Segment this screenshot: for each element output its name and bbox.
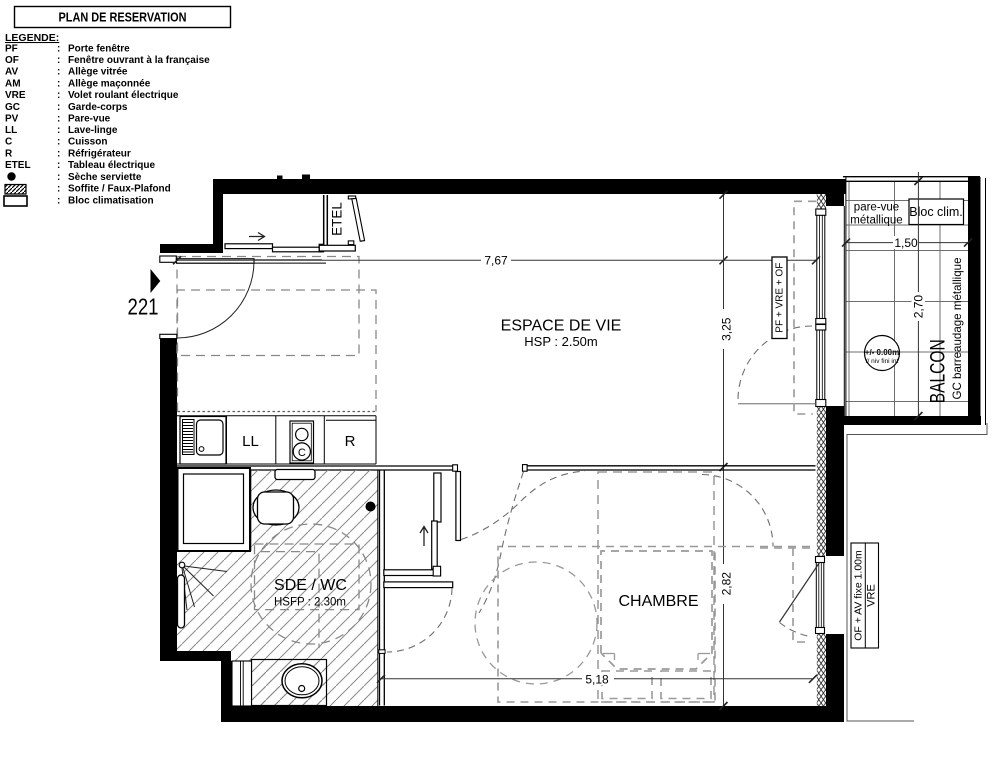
svg-text:Tableau électrique: Tableau électrique [68, 160, 156, 171]
svg-text:LL: LL [5, 125, 17, 136]
svg-text:PF: PF [5, 44, 18, 55]
svg-text:Bloc climatisation: Bloc climatisation [68, 196, 154, 207]
svg-text:1,50: 1,50 [894, 236, 918, 250]
svg-text::: : [57, 67, 60, 78]
svg-text:HSP : 2.50m: HSP : 2.50m [524, 334, 597, 349]
svg-text:C: C [5, 137, 12, 148]
svg-text:SDE / WC: SDE / WC [274, 577, 347, 594]
svg-text:ETEL: ETEL [330, 202, 345, 236]
svg-text:AM: AM [5, 79, 21, 90]
svg-text::: : [57, 172, 60, 183]
svg-text:VRE: VRE [5, 90, 26, 101]
svg-text:PF + VRE + OF: PF + VRE + OF [774, 263, 785, 333]
svg-text:HSFP : 2.30m: HSFP : 2.30m [274, 597, 346, 609]
svg-text:Réfrigérateur: Réfrigérateur [68, 149, 131, 160]
svg-text:GC barreaudage métallique: GC barreaudage métallique [950, 257, 964, 399]
svg-text:Garde-corps: Garde-corps [68, 102, 128, 113]
svg-text::: : [57, 125, 60, 136]
svg-text:R: R [345, 433, 356, 450]
svg-text::: : [57, 184, 60, 195]
svg-text:Sèche serviette: Sèche serviette [68, 172, 142, 183]
svg-text:AV: AV [5, 67, 18, 78]
svg-text:+/- 0.00m: +/- 0.00m [865, 348, 899, 357]
svg-text:pare-vue: pare-vue [854, 202, 899, 214]
svg-text:3,25: 3,25 [719, 317, 733, 341]
svg-text::: : [57, 114, 60, 125]
svg-text::: : [57, 44, 60, 55]
svg-text:Soffite / Faux-Plafond: Soffite / Faux-Plafond [68, 184, 171, 195]
svg-text:C: C [298, 447, 306, 459]
svg-text:// niv fini int: // niv fini int [866, 358, 899, 365]
svg-text:5,18: 5,18 [585, 673, 609, 687]
svg-text:métallique: métallique [850, 215, 902, 227]
svg-text:GC: GC [5, 102, 20, 113]
svg-text:ETEL: ETEL [5, 160, 31, 171]
svg-text::: : [57, 137, 60, 148]
svg-text::: : [57, 160, 60, 171]
svg-text:2,82: 2,82 [719, 572, 733, 596]
svg-text:PLAN DE RESERVATION: PLAN DE RESERVATION [59, 10, 187, 25]
svg-text:OF + AV fixe 1.00m: OF + AV fixe 1.00m [853, 550, 865, 641]
svg-text:Pare-vue: Pare-vue [68, 114, 111, 125]
svg-text:Lave-linge: Lave-linge [68, 125, 118, 136]
svg-text::: : [57, 149, 60, 160]
svg-text::: : [57, 90, 60, 101]
svg-text:PV: PV [5, 114, 19, 125]
svg-text:221: 221 [128, 294, 159, 320]
svg-text:Cuisson: Cuisson [68, 137, 107, 148]
svg-text:CHAMBRE: CHAMBRE [618, 593, 698, 610]
svg-text::: : [57, 196, 60, 207]
svg-text:Fenêtre ouvrant à la française: Fenêtre ouvrant à la française [68, 55, 210, 66]
svg-text:LL: LL [242, 433, 259, 450]
svg-text:R: R [5, 149, 13, 160]
svg-text:2,70: 2,70 [912, 295, 926, 319]
svg-text:Allège maçonnée: Allège maçonnée [68, 79, 151, 90]
svg-text:Bloc clim.: Bloc clim. [909, 205, 962, 219]
svg-text:VRE: VRE [866, 584, 878, 607]
svg-text:7,67: 7,67 [484, 254, 508, 268]
svg-text::: : [57, 102, 60, 113]
svg-text:BALCON: BALCON [927, 339, 950, 403]
svg-text:LEGENDE:: LEGENDE: [5, 32, 59, 44]
svg-text::: : [57, 55, 60, 66]
svg-text:Porte fenêtre: Porte fenêtre [68, 44, 130, 55]
svg-text:Allège vitrée: Allège vitrée [68, 67, 128, 78]
svg-text:ESPACE DE VIE: ESPACE DE VIE [501, 318, 622, 335]
svg-text::: : [57, 79, 60, 90]
svg-text:Volet roulant électrique: Volet roulant électrique [68, 90, 179, 101]
svg-text:OF: OF [5, 55, 19, 66]
